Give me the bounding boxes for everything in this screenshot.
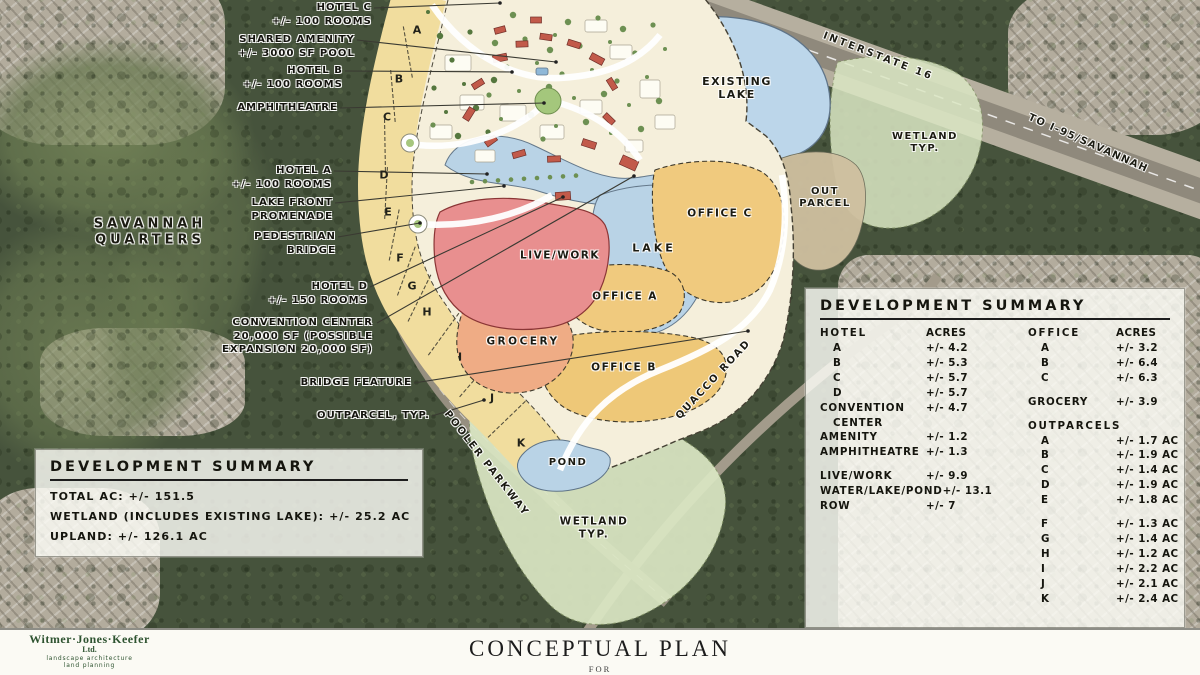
table-cell-label: D xyxy=(1028,478,1116,493)
map-label-office-a: OFFICE A xyxy=(592,291,658,304)
table-row: LIVE/WORK+/- 9.9 xyxy=(820,469,1012,484)
callout-line: PROMENADE xyxy=(252,210,333,224)
table-row: A+/- 4.2 xyxy=(820,341,1012,356)
callout-line: +/- 100 ROOMS xyxy=(272,15,372,29)
table-cell-value: +/- 6.4 xyxy=(1116,356,1200,371)
table-cell-label: D xyxy=(820,386,926,401)
table-cell-label: A xyxy=(1028,341,1116,356)
callout-line: 20,000 SF (POSSIBLE xyxy=(222,330,373,344)
callout-convention-center: CONVENTION CENTER20,000 SF (POSSIBLEEXPA… xyxy=(222,316,373,357)
table-row: D+/- 1.9 AC xyxy=(1028,478,1200,493)
table-row: E+/- 1.8 AC xyxy=(1028,493,1200,508)
table-cell-value xyxy=(926,416,1012,431)
table-cell-value: +/- 1.2 xyxy=(926,430,1012,445)
map-label-grocery: GROCERY xyxy=(486,336,559,349)
table-cell-label: B xyxy=(820,356,926,371)
map-label-line: WETLAND xyxy=(560,515,629,528)
title-bar: Witmer·Jones·Keefer Ltd. landscape archi… xyxy=(0,628,1200,675)
table-spacer xyxy=(1028,508,1200,517)
table-cell-value: +/- 1.2 AC xyxy=(1116,547,1200,562)
table-cell-value: +/- 2.4 AC xyxy=(1116,592,1200,607)
table-cell-value: +/- 13.1 xyxy=(943,484,1029,499)
callout-line: AMPHITHEATRE xyxy=(237,101,338,115)
table-cell-value: +/- 5.7 xyxy=(926,386,1012,401)
map-label-line: PARCEL xyxy=(799,198,850,210)
table-cell-value: ACRES xyxy=(926,326,1012,341)
parcel-letter-g: G xyxy=(407,280,416,293)
table-row: I+/- 2.2 AC xyxy=(1028,562,1200,577)
table-row: ROW+/- 7 xyxy=(820,499,1012,514)
table-cell-label: F xyxy=(1028,517,1116,532)
map-label-line: SAVANNAH xyxy=(94,216,206,232)
table-row: AMENITY+/- 1.2 xyxy=(820,430,1012,445)
callout-line: BRIDGE FEATURE xyxy=(301,376,412,390)
callout-line: CONVENTION CENTER xyxy=(222,316,373,330)
table-row: WATER/LAKE/POND+/- 13.1 xyxy=(820,484,1012,499)
table-row: B+/- 5.3 xyxy=(820,356,1012,371)
callout-hotel-d: HOTEL D+/- 150 ROOMS xyxy=(268,280,368,307)
table-row: HOTELACRES xyxy=(820,326,1012,341)
table-cell-label: A xyxy=(820,341,926,356)
table-spacer xyxy=(1028,410,1200,419)
map-label-line: LAKE xyxy=(632,241,676,254)
table-cell-value: +/- 1.3 xyxy=(926,445,1012,460)
table-cell-label: AMENITY xyxy=(820,430,926,445)
table-row: A+/- 1.7 AC xyxy=(1028,434,1200,449)
table-cell-value: ACRES xyxy=(1116,326,1200,341)
table-cell-value: +/- 1.7 AC xyxy=(1116,434,1200,449)
map-label-line: GROCERY xyxy=(486,336,559,349)
sheet-subtitle: FOR xyxy=(0,664,1200,674)
callout-line: +/- 150 ROOMS xyxy=(268,294,368,308)
map-label-line: OFFICE C xyxy=(687,208,752,221)
map-label-out-parcel: OUTPARCEL xyxy=(799,186,850,210)
table-cell-value: +/- 1.9 AC xyxy=(1116,478,1200,493)
table-cell-value: +/- 5.7 xyxy=(926,371,1012,386)
table-cell-label: LIVE/WORK xyxy=(820,469,926,484)
map-label-savannah-quarters: SAVANNAHQUARTERS xyxy=(94,216,206,247)
table-row: B+/- 1.9 AC xyxy=(1028,448,1200,463)
callout-line: +/- 3000 SF POOL xyxy=(238,47,355,61)
table-cell-label: C xyxy=(1028,371,1116,386)
callout-line: PEDESTRIAN xyxy=(254,230,336,244)
development-summary-box-left: DEVELOPMENT SUMMARY TOTAL AC: +/- 151.5W… xyxy=(35,449,423,557)
parcel-letter-i: I xyxy=(458,351,462,364)
parcel-letter-h: H xyxy=(422,306,431,319)
table-cell-value: +/- 3.9 xyxy=(1116,395,1200,410)
callout-line: HOTEL D xyxy=(268,280,368,294)
parcel-letter-f: F xyxy=(396,252,404,265)
table-cell-value: +/- 1.3 AC xyxy=(1116,517,1200,532)
table-cell-label: J xyxy=(1028,577,1116,592)
callout-line: OUTPARCEL, TYP. xyxy=(317,409,430,423)
callout-line: HOTEL A xyxy=(232,164,332,178)
table-cell-value: +/- 9.9 xyxy=(926,469,1012,484)
table-cell-value: +/- 4.2 xyxy=(926,341,1012,356)
table-cell-label: GROCERY xyxy=(1028,395,1116,410)
callout-outparcel-typ: OUTPARCEL, TYP. xyxy=(317,409,430,423)
table-cell-label: I xyxy=(1028,562,1116,577)
table-cell-value: +/- 1.8 AC xyxy=(1116,493,1200,508)
summary-row: WETLAND (INCLUDES EXISTING LAKE): +/- 25… xyxy=(50,507,408,527)
table-cell-value: +/- 1.9 AC xyxy=(1116,448,1200,463)
table-spacer xyxy=(1028,386,1200,395)
map-area: EXISTINGLAKEWETLANDTYP.OUTPARCELOFFICE C… xyxy=(0,0,1200,628)
summary-left-title: DEVELOPMENT SUMMARY xyxy=(50,459,408,481)
table-cell-label: H xyxy=(1028,547,1116,562)
map-label-line: WETLAND xyxy=(892,131,958,143)
sheet-title: CONCEPTUAL PLAN xyxy=(0,636,1200,662)
table-row: OUTPARCELS xyxy=(1028,419,1200,434)
parcel-letter-b: B xyxy=(395,73,403,86)
callout-line: +/- 100 ROOMS xyxy=(243,78,343,92)
map-label-line: TYP. xyxy=(892,143,958,155)
table-cell-label: OFFICE xyxy=(1028,326,1116,341)
map-label-line: OFFICE A xyxy=(592,291,658,304)
table-row: OFFICEACRES xyxy=(1028,326,1200,341)
table-cell-value: +/- 3.2 xyxy=(1116,341,1200,356)
map-label-existing-lake: EXISTINGLAKE xyxy=(702,75,772,101)
map-label-line: OFFICE B xyxy=(591,362,657,375)
table-cell-label: CONVENTION xyxy=(820,401,926,416)
parcel-letter-a: A xyxy=(413,24,422,37)
summary-row: TOTAL AC: +/- 151.5 xyxy=(50,487,408,507)
table-cell-value: +/- 4.7 xyxy=(926,401,1012,416)
table-cell-value: +/- 7 xyxy=(926,499,1012,514)
table-cell-value: +/- 2.1 AC xyxy=(1116,577,1200,592)
table-row: C+/- 1.4 AC xyxy=(1028,463,1200,478)
table-row: C+/- 6.3 xyxy=(1028,371,1200,386)
map-label-line: EXISTING xyxy=(702,75,772,88)
map-label-pond: POND xyxy=(549,457,588,469)
map-label-line: POND xyxy=(549,457,588,469)
table-row: G+/- 1.4 AC xyxy=(1028,532,1200,547)
callout-amphitheatre: AMPHITHEATRE xyxy=(237,101,338,115)
map-label-line: OUT xyxy=(799,186,850,198)
table-row: D+/- 5.7 xyxy=(820,386,1012,401)
table-cell-label: WATER/LAKE/POND xyxy=(820,484,943,499)
table-cell-value: +/- 6.3 xyxy=(1116,371,1200,386)
summary-right-title: DEVELOPMENT SUMMARY xyxy=(820,298,1170,320)
table-cell-label: CENTER xyxy=(820,416,926,431)
development-summary-box-right: DEVELOPMENT SUMMARY HOTELACRESA+/- 4.2B+… xyxy=(805,288,1185,628)
table-row: J+/- 2.1 AC xyxy=(1028,577,1200,592)
callout-shared-amenity: SHARED AMENITY+/- 3000 SF POOL xyxy=(238,33,355,60)
table-cell-label: K xyxy=(1028,592,1116,607)
table-row: CONVENTION+/- 4.7 xyxy=(820,401,1012,416)
map-label-line: QUARTERS xyxy=(94,232,206,248)
callout-pedestrian: PEDESTRIANBRIDGE xyxy=(254,230,336,257)
map-label-line: TYP. xyxy=(560,528,629,541)
callout-line: +/- 100 ROOMS xyxy=(232,178,332,192)
table-row: A+/- 3.2 xyxy=(1028,341,1200,356)
table-cell-label: HOTEL xyxy=(820,326,926,341)
table-row: AMPHITHEATRE+/- 1.3 xyxy=(820,445,1012,460)
callout-hotel-b: HOTEL B+/- 100 ROOMS xyxy=(243,64,343,91)
callout-hotel-a: HOTEL A+/- 100 ROOMS xyxy=(232,164,332,191)
table-cell-label: AMPHITHEATRE xyxy=(820,445,926,460)
table-row: GROCERY+/- 3.9 xyxy=(1028,395,1200,410)
map-label-line: LIVE/WORK xyxy=(520,250,600,263)
table-cell-label: A xyxy=(1028,434,1116,449)
table-cell-value: +/- 5.3 xyxy=(926,356,1012,371)
callout-line: EXPANSION 20,000 SF) xyxy=(222,343,373,357)
parcel-letter-e: E xyxy=(384,206,392,219)
table-cell-label: C xyxy=(1028,463,1116,478)
callout-line: BRIDGE xyxy=(254,244,336,258)
parcel-letter-j: J xyxy=(490,392,494,405)
map-label-wetland-typ: WETLANDTYP. xyxy=(560,515,629,540)
table-row: H+/- 1.2 AC xyxy=(1028,547,1200,562)
callout-line: HOTEL C xyxy=(272,1,372,15)
table-cell-label: C xyxy=(820,371,926,386)
map-label-office-b: OFFICE B xyxy=(591,362,657,375)
callout-bridge-feature: BRIDGE FEATURE xyxy=(301,376,412,390)
parcel-letter-d: D xyxy=(379,169,388,182)
table-row: B+/- 6.4 xyxy=(1028,356,1200,371)
map-label-line: LAKE xyxy=(702,88,772,101)
map-label-live-work: LIVE/WORK xyxy=(520,250,600,263)
table-row: C+/- 5.7 xyxy=(820,371,1012,386)
table-cell-label: ROW xyxy=(820,499,926,514)
map-label-office-c: OFFICE C xyxy=(687,208,752,221)
map-label-lake: LAKE xyxy=(632,241,676,254)
callout-line: LAKE FRONT xyxy=(252,196,333,210)
callout-line: SHARED AMENITY xyxy=(238,33,355,47)
callout-line: HOTEL B xyxy=(243,64,343,78)
summary-row: UPLAND: +/- 126.1 AC xyxy=(50,527,408,547)
callout-lake-front: LAKE FRONTPROMENADE xyxy=(252,196,333,223)
table-cell-value: +/- 1.4 AC xyxy=(1116,532,1200,547)
table-cell-label: B xyxy=(1028,356,1116,371)
table-cell-value: +/- 1.4 AC xyxy=(1116,463,1200,478)
table-cell-label: E xyxy=(1028,493,1116,508)
parcel-letter-k: K xyxy=(517,437,526,450)
table-row: CENTER xyxy=(820,416,1012,431)
table-cell-label: OUTPARCELS xyxy=(1028,419,1121,434)
table-row: K+/- 2.4 AC xyxy=(1028,592,1200,607)
table-spacer xyxy=(820,460,1012,469)
plan-sheet: EXISTINGLAKEWETLANDTYP.OUTPARCELOFFICE C… xyxy=(0,0,1200,675)
parcel-letter-c: C xyxy=(383,111,391,124)
table-cell-label: B xyxy=(1028,448,1116,463)
map-label-wetland-typ: WETLANDTYP. xyxy=(892,131,958,155)
table-cell-value xyxy=(1121,419,1200,434)
table-row: F+/- 1.3 AC xyxy=(1028,517,1200,532)
table-cell-label: G xyxy=(1028,532,1116,547)
callout-hotel-c: HOTEL C+/- 100 ROOMS xyxy=(272,1,372,28)
table-cell-value: +/- 2.2 AC xyxy=(1116,562,1200,577)
